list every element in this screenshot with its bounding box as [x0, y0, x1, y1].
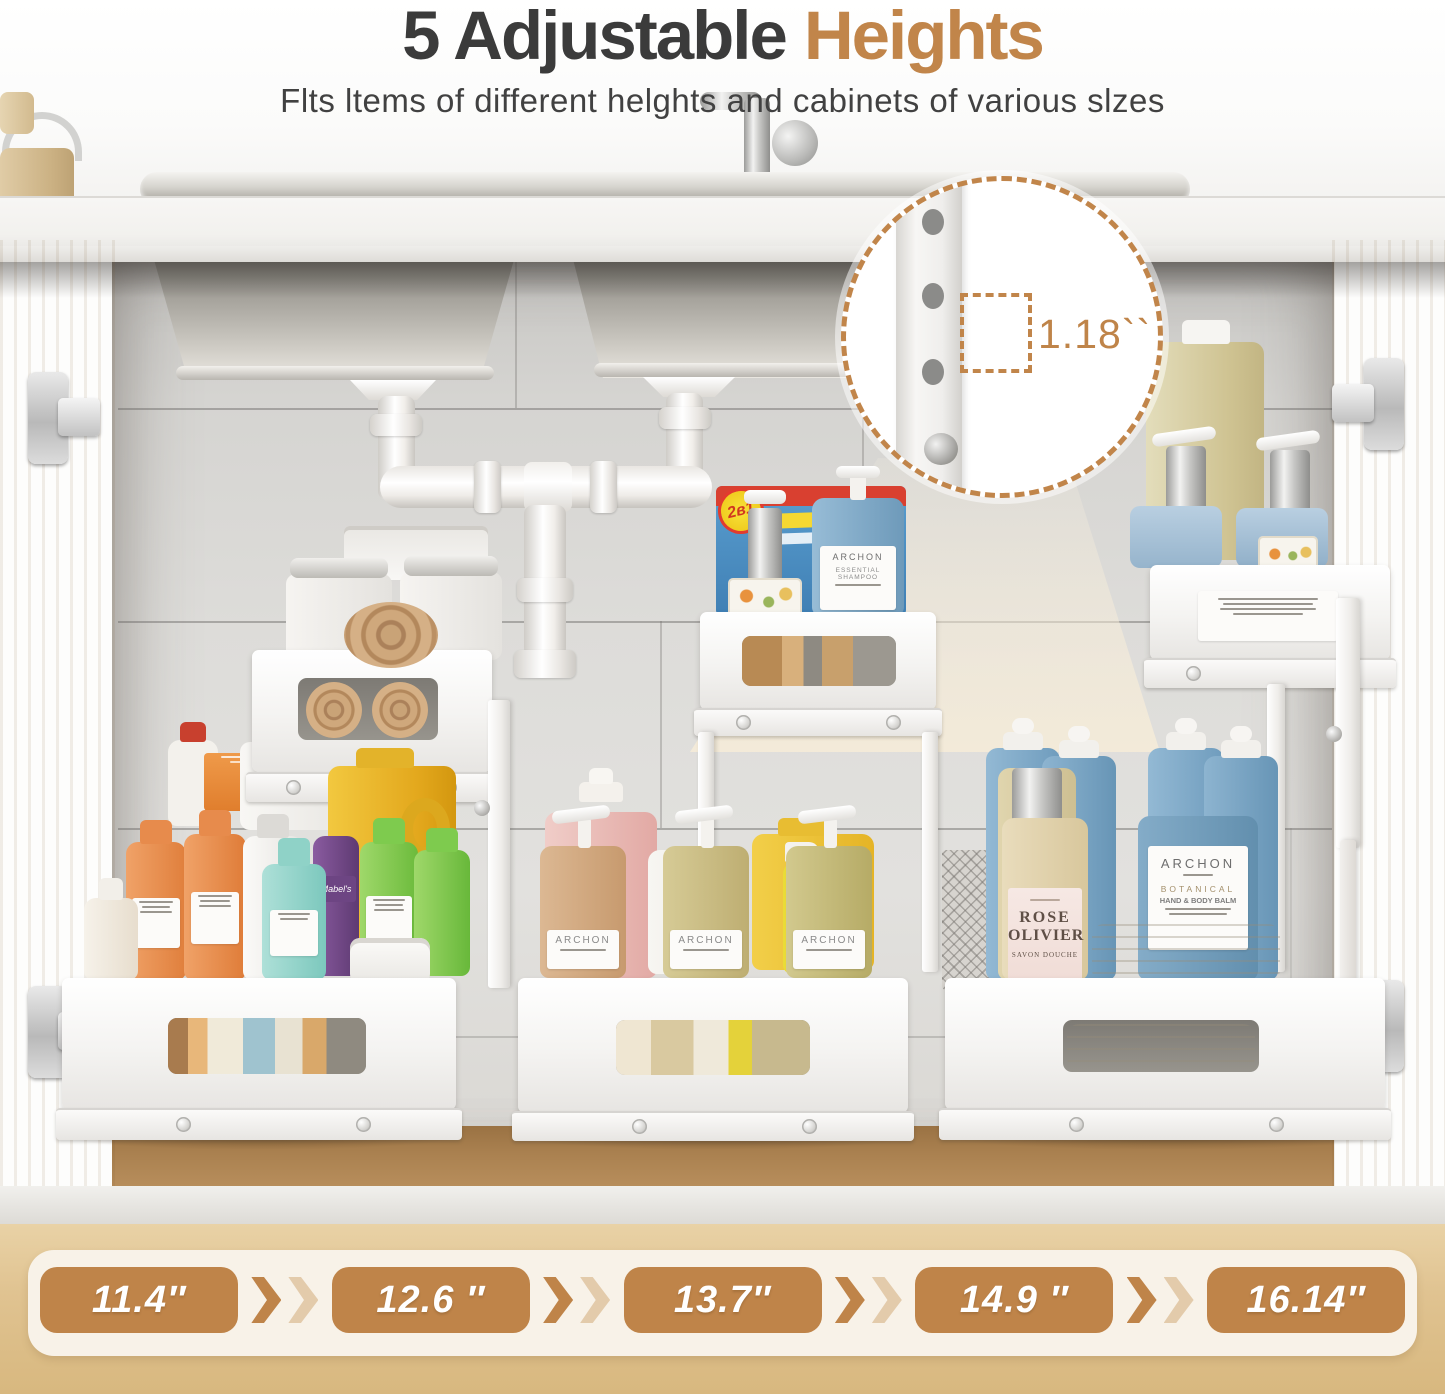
label-brand: ARCHON — [670, 935, 742, 946]
pump-stem — [824, 818, 837, 848]
base-drawer-left — [62, 978, 456, 1110]
pump-head — [836, 466, 880, 478]
page-subtitle: Flts ltems of different helghts and cabi… — [0, 82, 1445, 120]
tile-grout-line — [660, 621, 662, 828]
hinge-arm — [58, 398, 100, 436]
hinge-icon — [1358, 358, 1404, 450]
pipe-nut — [659, 407, 711, 429]
push-cap — [1059, 740, 1099, 758]
under-counter-shadow — [0, 262, 1445, 298]
adjustment-pin-icon — [474, 800, 490, 816]
chevron-right-icon — [1127, 1277, 1194, 1323]
chevron-right-icon — [835, 1277, 902, 1323]
drawer-window — [1063, 1020, 1259, 1072]
label-line: HAND & BODY BALM — [1148, 896, 1248, 905]
rolled-towel — [306, 682, 362, 738]
zoom-callout-circle: 1.18`` — [841, 176, 1163, 498]
screw-icon — [286, 780, 301, 795]
height-badge-1: 11.4″ — [40, 1267, 238, 1333]
push-cap — [1003, 732, 1043, 750]
cabinet-base-front — [0, 1186, 1445, 1224]
bottle-cap — [278, 838, 310, 866]
bottle-label — [270, 910, 318, 956]
bottle — [184, 834, 246, 980]
bottle-cap — [257, 814, 289, 838]
adjustment-hole — [922, 359, 944, 385]
drawer-rail — [56, 1108, 462, 1140]
countertop — [0, 196, 1445, 250]
bottle-label: ROSE OLIVIER SAVON DOUCHE — [1008, 888, 1082, 984]
push-knob — [1175, 718, 1197, 734]
pipe-nut — [370, 414, 422, 436]
bottle-label: ARCHON — [547, 930, 619, 969]
measurement-value: 1.18`` — [1038, 311, 1151, 358]
rose-olivier-bottle: ROSE OLIVIER SAVON DOUCHE — [1002, 818, 1088, 980]
tier-window — [298, 678, 438, 740]
bottle — [262, 864, 326, 980]
push-knob — [1068, 726, 1090, 742]
screw-icon — [632, 1119, 647, 1134]
label-line: BOTANICAL — [1148, 884, 1248, 894]
window-contents — [616, 1020, 810, 1075]
pump-bottle — [84, 898, 138, 980]
jar-lid — [404, 556, 498, 576]
bottle-label: ARCHON ESSENTIAL SHAMPOO — [820, 546, 896, 610]
folded-towels — [1067, 1024, 1255, 1070]
frame-post — [922, 732, 938, 972]
base-drawer-middle — [518, 978, 908, 1113]
sink-basin-rim — [176, 366, 494, 380]
adjustment-pin-icon — [1326, 726, 1342, 742]
label-brand: ARCHON — [820, 552, 896, 562]
window-contents — [742, 636, 896, 686]
blue-container — [1130, 506, 1222, 568]
height-badge-3: 13.7″ — [624, 1267, 822, 1333]
window-contents — [168, 1018, 366, 1074]
bottle-label: ARCHON — [793, 930, 865, 969]
bottle-cap — [199, 810, 231, 836]
drawer-window — [168, 1018, 366, 1074]
push-cap — [1166, 732, 1206, 750]
label-brand: ARCHON — [547, 935, 619, 946]
jug-cap — [356, 748, 414, 768]
pump-bottle: ARCHON — [786, 846, 872, 978]
hinge-icon — [28, 372, 74, 464]
height-badge-5: 16.14″ — [1207, 1267, 1405, 1333]
screw-icon — [736, 715, 751, 730]
rolled-towel — [372, 682, 428, 738]
faucet-handle — [772, 120, 818, 166]
telescoping-post-outer — [1336, 598, 1360, 848]
bottle-cap — [373, 818, 405, 844]
pump-bottle: ARCHON — [540, 846, 626, 978]
pump-collar — [579, 782, 623, 802]
product-infographic: Mabel's 2в1 — [0, 0, 1445, 1394]
label-sub: SAVON DOUCHE — [1008, 951, 1082, 959]
rolled-towel — [344, 602, 438, 668]
screw-icon — [802, 1119, 817, 1134]
drawer-rail — [512, 1111, 914, 1141]
pipe-end-cap — [514, 650, 576, 678]
pump-bottle: ARCHON — [663, 846, 749, 978]
sink-basin-rim — [594, 363, 876, 377]
screw-icon — [1269, 1117, 1284, 1132]
drawer-rail — [939, 1108, 1391, 1140]
bottle-cap — [140, 820, 172, 844]
pump-stem — [578, 818, 591, 848]
screw-icon — [1069, 1117, 1084, 1132]
bolt-icon — [924, 433, 958, 465]
tier-window — [742, 636, 896, 686]
push-knob — [1230, 726, 1252, 742]
pump-top — [589, 768, 613, 784]
heights-badge-row: 11.4″ 12.6 ″ 13.7″ 14.9 ″ 16.14″ — [40, 1267, 1405, 1333]
tier-rail — [694, 708, 942, 736]
pipe-coupling — [590, 461, 617, 513]
frame-post — [488, 700, 510, 988]
bottle-cap — [426, 828, 458, 852]
title-accent: Heights — [804, 0, 1043, 74]
pump-stem — [701, 818, 714, 848]
screw-icon — [1186, 666, 1201, 681]
chevron-right-icon — [251, 1277, 318, 1323]
pipe-coupling — [517, 578, 573, 602]
upper-tier-middle — [700, 612, 936, 710]
jug-cap — [1182, 320, 1230, 344]
push-knob — [1012, 718, 1034, 734]
jar-lid — [290, 558, 388, 578]
screw-icon — [886, 715, 901, 730]
countertop-edge — [0, 246, 1445, 262]
label-line: ROSE — [1008, 909, 1082, 927]
adjustment-hole — [922, 283, 944, 309]
bottle-label — [132, 898, 180, 948]
hinge-arm — [1332, 384, 1374, 422]
chevron-right-icon — [543, 1277, 610, 1323]
push-cap — [1221, 740, 1261, 758]
pump-top — [99, 878, 123, 900]
adjustment-hole — [922, 209, 944, 235]
label-line: SHAMPOO — [820, 574, 896, 581]
label-brand: ARCHON — [793, 935, 865, 946]
title-main: 5 Adjustable — [402, 0, 786, 74]
label-line: ESSENTIAL — [820, 567, 896, 574]
pump-head — [744, 490, 786, 504]
height-badge-2: 12.6 ″ — [332, 1267, 530, 1333]
bottle-cap — [180, 722, 206, 742]
height-badge-4: 14.9 ″ — [915, 1267, 1113, 1333]
drawer-window — [616, 1020, 810, 1075]
page-title: 5 AdjustableHeights — [0, 0, 1445, 72]
screw-icon — [176, 1117, 191, 1132]
tier-label — [1198, 591, 1338, 641]
base-drawer-right — [945, 978, 1385, 1110]
pipe-coupling — [474, 461, 501, 513]
measurement-box — [960, 293, 1032, 373]
bottle-label: ARCHON — [670, 930, 742, 969]
label-line: OLIVIER — [1008, 927, 1082, 945]
bottle-label — [191, 892, 239, 944]
shampoo-bottle: ARCHON ESSENTIAL SHAMPOO — [812, 498, 904, 616]
folded-towels — [1092, 924, 1280, 982]
screw-icon — [356, 1117, 371, 1132]
label-brand: ARCHON — [1148, 856, 1248, 871]
